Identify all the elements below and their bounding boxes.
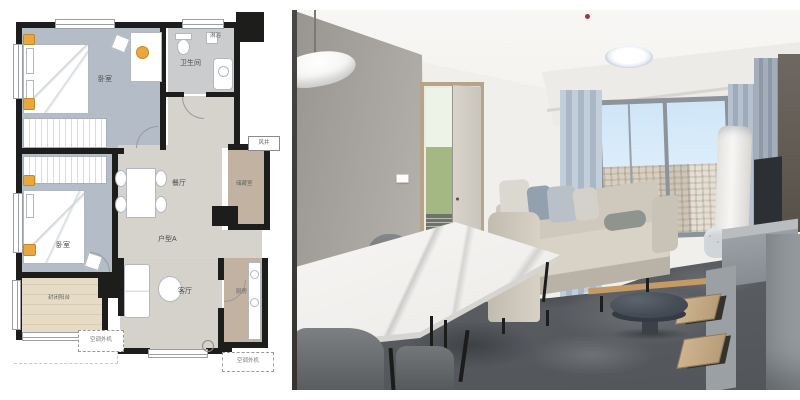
wall bbox=[160, 92, 184, 97]
air-shaft-label: 风井 bbox=[258, 141, 269, 147]
wall bbox=[236, 12, 264, 42]
side-cabinet bbox=[766, 234, 800, 390]
window bbox=[13, 44, 23, 99]
sofa-leg bbox=[600, 296, 603, 312]
wall bbox=[218, 258, 224, 280]
kitchen-sink bbox=[250, 270, 259, 279]
wardrobe bbox=[23, 156, 107, 184]
ceiling-light bbox=[605, 46, 653, 68]
wall bbox=[234, 94, 240, 144]
room-label-balcony: 封闭阳台 bbox=[48, 296, 70, 302]
dining-chair bbox=[115, 170, 127, 187]
dining-chair-foreground bbox=[292, 328, 384, 390]
room-label-bedroom-top: 卧室 bbox=[98, 76, 112, 83]
dining-table-leg bbox=[458, 330, 469, 382]
room-label-bedroom-left: 卧室 bbox=[56, 242, 70, 249]
ac-outdoor-unit-right: 空调外机 bbox=[222, 352, 274, 372]
room-label-shower: 淋浴 bbox=[210, 34, 221, 40]
wall bbox=[262, 258, 268, 348]
sprinkler-icon bbox=[585, 14, 590, 19]
wardrobe bbox=[23, 118, 107, 148]
kitchen-burner bbox=[250, 298, 259, 307]
dining-table bbox=[126, 168, 156, 218]
drawer-unit-side bbox=[706, 265, 736, 390]
lamp-icon bbox=[23, 98, 35, 110]
floor-plan: 空调外机 空调外机 风井 卧室 卫生间 淋浴 餐厅 户型A 储藏室 卧室 封闭阳… bbox=[10, 8, 278, 378]
toilet bbox=[177, 39, 190, 55]
room-label-kitchen: 厨房 bbox=[236, 290, 247, 296]
dining-chair-foreground bbox=[396, 346, 454, 390]
living-room-photo bbox=[292, 10, 800, 390]
lamp-icon bbox=[23, 175, 35, 186]
ac-right-label: 空调外机 bbox=[237, 359, 259, 365]
foreground-door-edge bbox=[292, 10, 297, 390]
sofa-plan bbox=[124, 264, 150, 318]
wall bbox=[224, 342, 268, 348]
dining-chair bbox=[115, 196, 127, 213]
ac-outdoor-unit-left: 空调外机 bbox=[78, 330, 124, 352]
air-shaft-box: 风井 bbox=[248, 136, 280, 151]
ac-left-label: 空调外机 bbox=[90, 338, 112, 344]
window bbox=[55, 19, 115, 29]
dining-table-leg bbox=[389, 348, 396, 390]
room-balcony bbox=[16, 278, 102, 334]
room-label-bathroom: 卫生间 bbox=[180, 60, 201, 67]
room-label-storage: 储藏室 bbox=[236, 182, 253, 188]
chair-icon bbox=[136, 46, 149, 59]
light-switch bbox=[396, 174, 409, 183]
wall bbox=[212, 206, 238, 226]
bed-pillow bbox=[26, 48, 34, 74]
listing-image: 空调外机 空调外机 风井 卧室 卫生间 淋浴 餐厅 户型A 储藏室 卧室 封闭阳… bbox=[0, 0, 800, 400]
room-hall-ext bbox=[222, 230, 262, 258]
wall bbox=[16, 148, 124, 154]
room-label-living: 客厅 bbox=[178, 288, 192, 295]
wall bbox=[264, 144, 270, 230]
window bbox=[13, 193, 23, 253]
coffee-table-top bbox=[610, 292, 688, 318]
compass-icon bbox=[202, 340, 214, 352]
room-label-unit: 户型A bbox=[158, 236, 177, 243]
bed-pillow bbox=[26, 194, 34, 218]
window bbox=[12, 280, 21, 330]
lamp-icon bbox=[23, 34, 35, 45]
door-handle bbox=[456, 197, 459, 200]
window bbox=[148, 349, 208, 358]
wall bbox=[234, 28, 240, 98]
sofa-arm-right bbox=[652, 194, 678, 254]
dining-chair bbox=[155, 170, 167, 187]
coffee-table bbox=[610, 292, 690, 342]
room-label-dining: 餐厅 bbox=[172, 180, 186, 187]
dining-chair bbox=[155, 196, 167, 213]
lamp-icon bbox=[23, 244, 36, 256]
sink bbox=[218, 66, 229, 77]
window bbox=[182, 19, 224, 29]
